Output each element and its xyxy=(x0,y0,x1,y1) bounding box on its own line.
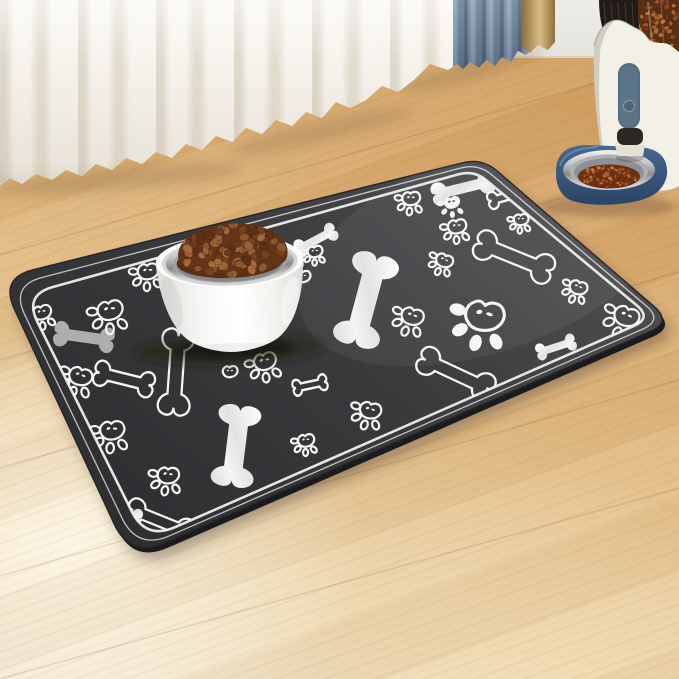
product-photo-scene xyxy=(0,0,679,679)
paw-print-motif xyxy=(605,214,640,246)
automatic-pet-feeder xyxy=(542,0,679,217)
feeder-button xyxy=(624,101,635,112)
feeder-food-chute xyxy=(617,128,643,145)
